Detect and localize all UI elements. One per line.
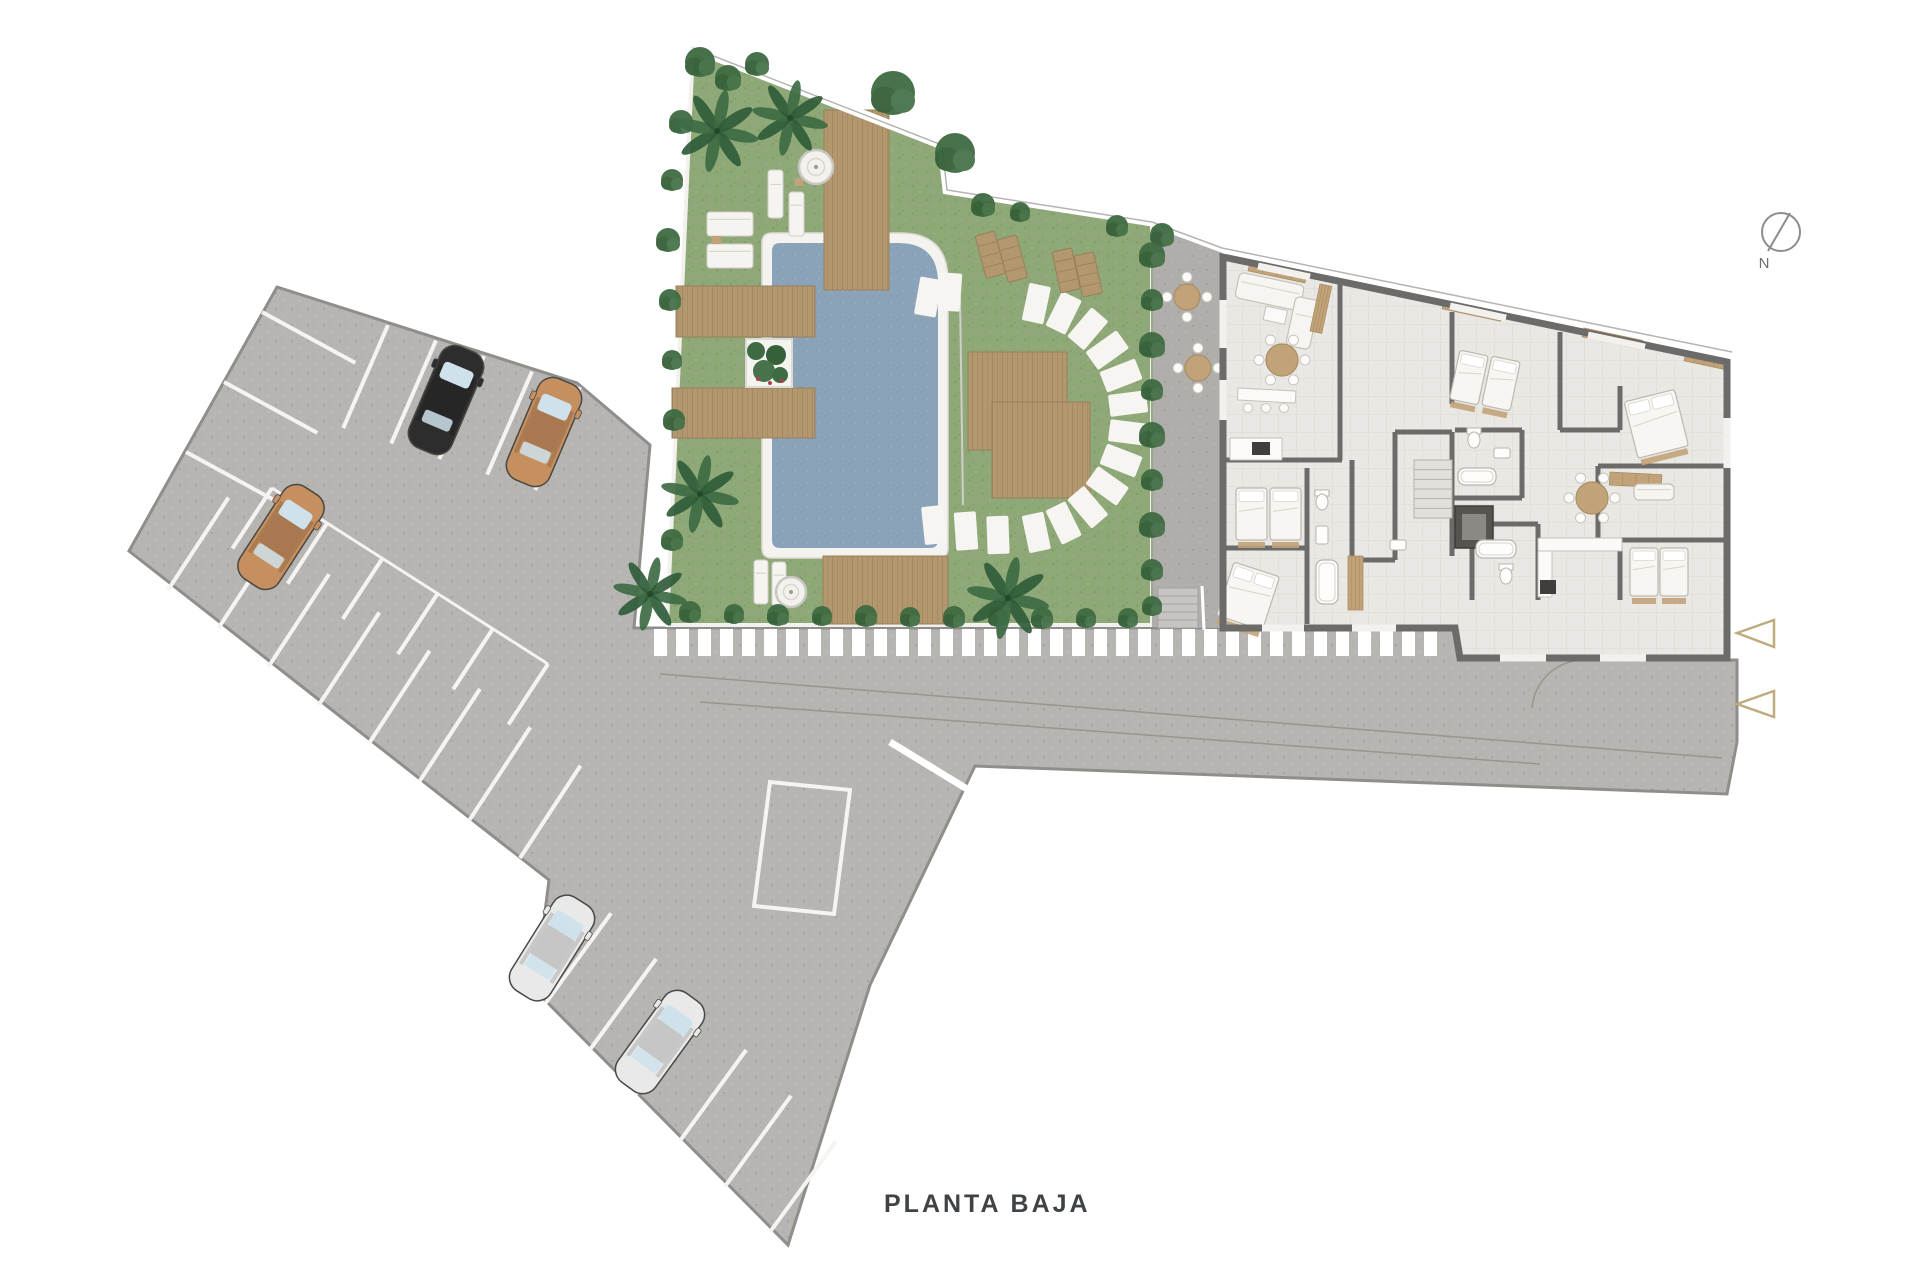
bush — [971, 193, 995, 217]
crosswalk-stripe — [962, 629, 975, 656]
crosswalk-stripe — [720, 629, 733, 656]
bar-stool — [1244, 404, 1253, 413]
bush — [871, 71, 915, 115]
crosswalk-stripe — [1050, 629, 1063, 656]
crosswalk-stripe — [830, 629, 843, 656]
bush — [900, 607, 920, 627]
planter-plant — [747, 342, 765, 360]
bush — [679, 601, 701, 623]
bush — [1141, 379, 1163, 401]
crosswalk-stripe — [1072, 629, 1085, 656]
bush — [1010, 202, 1030, 222]
bush — [1141, 289, 1163, 311]
bush — [1139, 422, 1165, 448]
toilet — [1467, 428, 1481, 448]
crosswalk-stripe — [698, 629, 711, 656]
crosswalk-stripe — [808, 629, 821, 656]
entrance-stairs — [1158, 586, 1204, 630]
crosswalk-stripe — [896, 629, 909, 656]
planter-box — [746, 339, 792, 387]
sink — [1390, 540, 1406, 550]
stairs — [1158, 586, 1204, 630]
crosswalk-stripe — [1006, 629, 1019, 656]
bush — [1139, 242, 1165, 268]
bathtub — [1476, 540, 1516, 558]
bush — [656, 228, 680, 252]
side-table — [712, 236, 721, 244]
bush — [663, 409, 685, 431]
crosswalk-stripe — [1116, 629, 1129, 656]
bed — [1236, 488, 1267, 548]
crosswalk-stripe — [1182, 629, 1195, 656]
bush — [855, 605, 877, 627]
page-title: PLANTA BAJA — [884, 1190, 1091, 1219]
planter-plant — [772, 367, 788, 383]
sink — [1316, 526, 1328, 544]
crosswalk-stripe — [654, 629, 667, 656]
bush — [1141, 559, 1163, 581]
stepping-stone — [921, 505, 947, 545]
stove — [1540, 580, 1556, 594]
crosswalk-stripe — [1138, 629, 1151, 656]
bush — [745, 52, 769, 76]
wood-deck — [992, 402, 1090, 498]
entrance-arrow-icon — [1737, 691, 1774, 717]
entrance-arrows — [1737, 620, 1774, 717]
crosswalk-stripe — [1424, 629, 1437, 656]
bush — [935, 133, 975, 173]
bush — [661, 169, 683, 191]
crosswalk-stripe — [1336, 629, 1349, 656]
sofa — [1634, 484, 1674, 500]
crosswalk-stripe — [940, 629, 953, 656]
bush — [1106, 215, 1128, 237]
sun-lounger — [789, 192, 804, 236]
bush — [715, 65, 741, 91]
bush — [1142, 596, 1162, 616]
bar-stool — [1262, 404, 1271, 413]
bed — [1630, 548, 1658, 604]
crosswalk-stripe — [874, 629, 887, 656]
counter — [1538, 538, 1622, 551]
crosswalk-stripe — [1204, 629, 1217, 656]
crosswalk-stripe — [852, 629, 865, 656]
compass-north-label: N — [1759, 255, 1770, 272]
wood-deck — [823, 556, 948, 624]
bush — [943, 606, 965, 628]
floor-plan-page: N PLANTA BAJA — [0, 0, 1920, 1280]
crosswalk-stripe — [918, 629, 931, 656]
bush — [1118, 608, 1138, 628]
crosswalk-stripe — [1380, 629, 1393, 656]
crosswalk-stripe — [1314, 629, 1327, 656]
sun-lounger — [707, 244, 753, 268]
crosswalk-stripe — [1270, 629, 1283, 656]
jacuzzi — [776, 577, 806, 607]
side-table — [795, 178, 803, 186]
bush — [1076, 608, 1096, 628]
wood-deck — [824, 110, 889, 290]
site-plan-canvas: N — [0, 0, 1920, 1280]
bathtub — [1316, 560, 1338, 604]
toilet — [1499, 564, 1513, 584]
crosswalk-stripe — [984, 629, 997, 656]
bed — [1660, 548, 1688, 604]
counter — [1237, 388, 1296, 403]
sun-lounger — [707, 212, 753, 236]
bush — [767, 604, 789, 626]
crosswalk-stripe — [786, 629, 799, 656]
stepping-stone — [986, 516, 1009, 555]
entrance-arrow-icon — [1737, 620, 1774, 647]
wood-deck — [672, 388, 815, 438]
crosswalk-stripe — [1292, 629, 1305, 656]
crosswalk-stripe — [742, 629, 755, 656]
bush — [1031, 607, 1053, 629]
bush — [661, 529, 683, 551]
bush — [1139, 512, 1165, 538]
crosswalk-stripe — [1226, 629, 1239, 656]
planter-flower — [780, 379, 784, 383]
sun-lounger — [768, 170, 783, 218]
bar-stool — [1280, 404, 1289, 413]
sun-lounger — [754, 560, 768, 604]
bush — [724, 604, 744, 624]
bush — [659, 289, 681, 311]
stove — [1252, 442, 1270, 455]
crosswalk-stripe — [676, 629, 689, 656]
bush — [685, 47, 715, 77]
wood-deck — [676, 286, 815, 337]
north-compass: N — [1759, 213, 1800, 272]
bed — [1270, 488, 1301, 548]
bush — [812, 606, 832, 626]
crosswalk-stripe — [1402, 629, 1415, 656]
compass-circle-icon — [1762, 213, 1800, 251]
crosswalk-stripe — [1160, 629, 1173, 656]
jacuzzi — [799, 150, 833, 184]
toilet — [1315, 490, 1329, 510]
bush — [1139, 332, 1165, 358]
planter-flower — [768, 381, 772, 385]
bush — [662, 350, 682, 370]
sink — [1494, 448, 1510, 458]
bathtub — [1458, 468, 1496, 485]
crosswalk-stripe — [1094, 629, 1107, 656]
crosswalk-stripe — [1358, 629, 1371, 656]
stepping-stone — [954, 511, 979, 550]
stairs — [1414, 460, 1452, 518]
planter-flower — [756, 377, 760, 381]
compass-needle-icon — [1768, 213, 1790, 251]
bush — [1141, 469, 1163, 491]
crosswalk-stripe — [764, 629, 777, 656]
stepping-stone — [938, 272, 963, 311]
wardrobe — [1348, 556, 1363, 610]
